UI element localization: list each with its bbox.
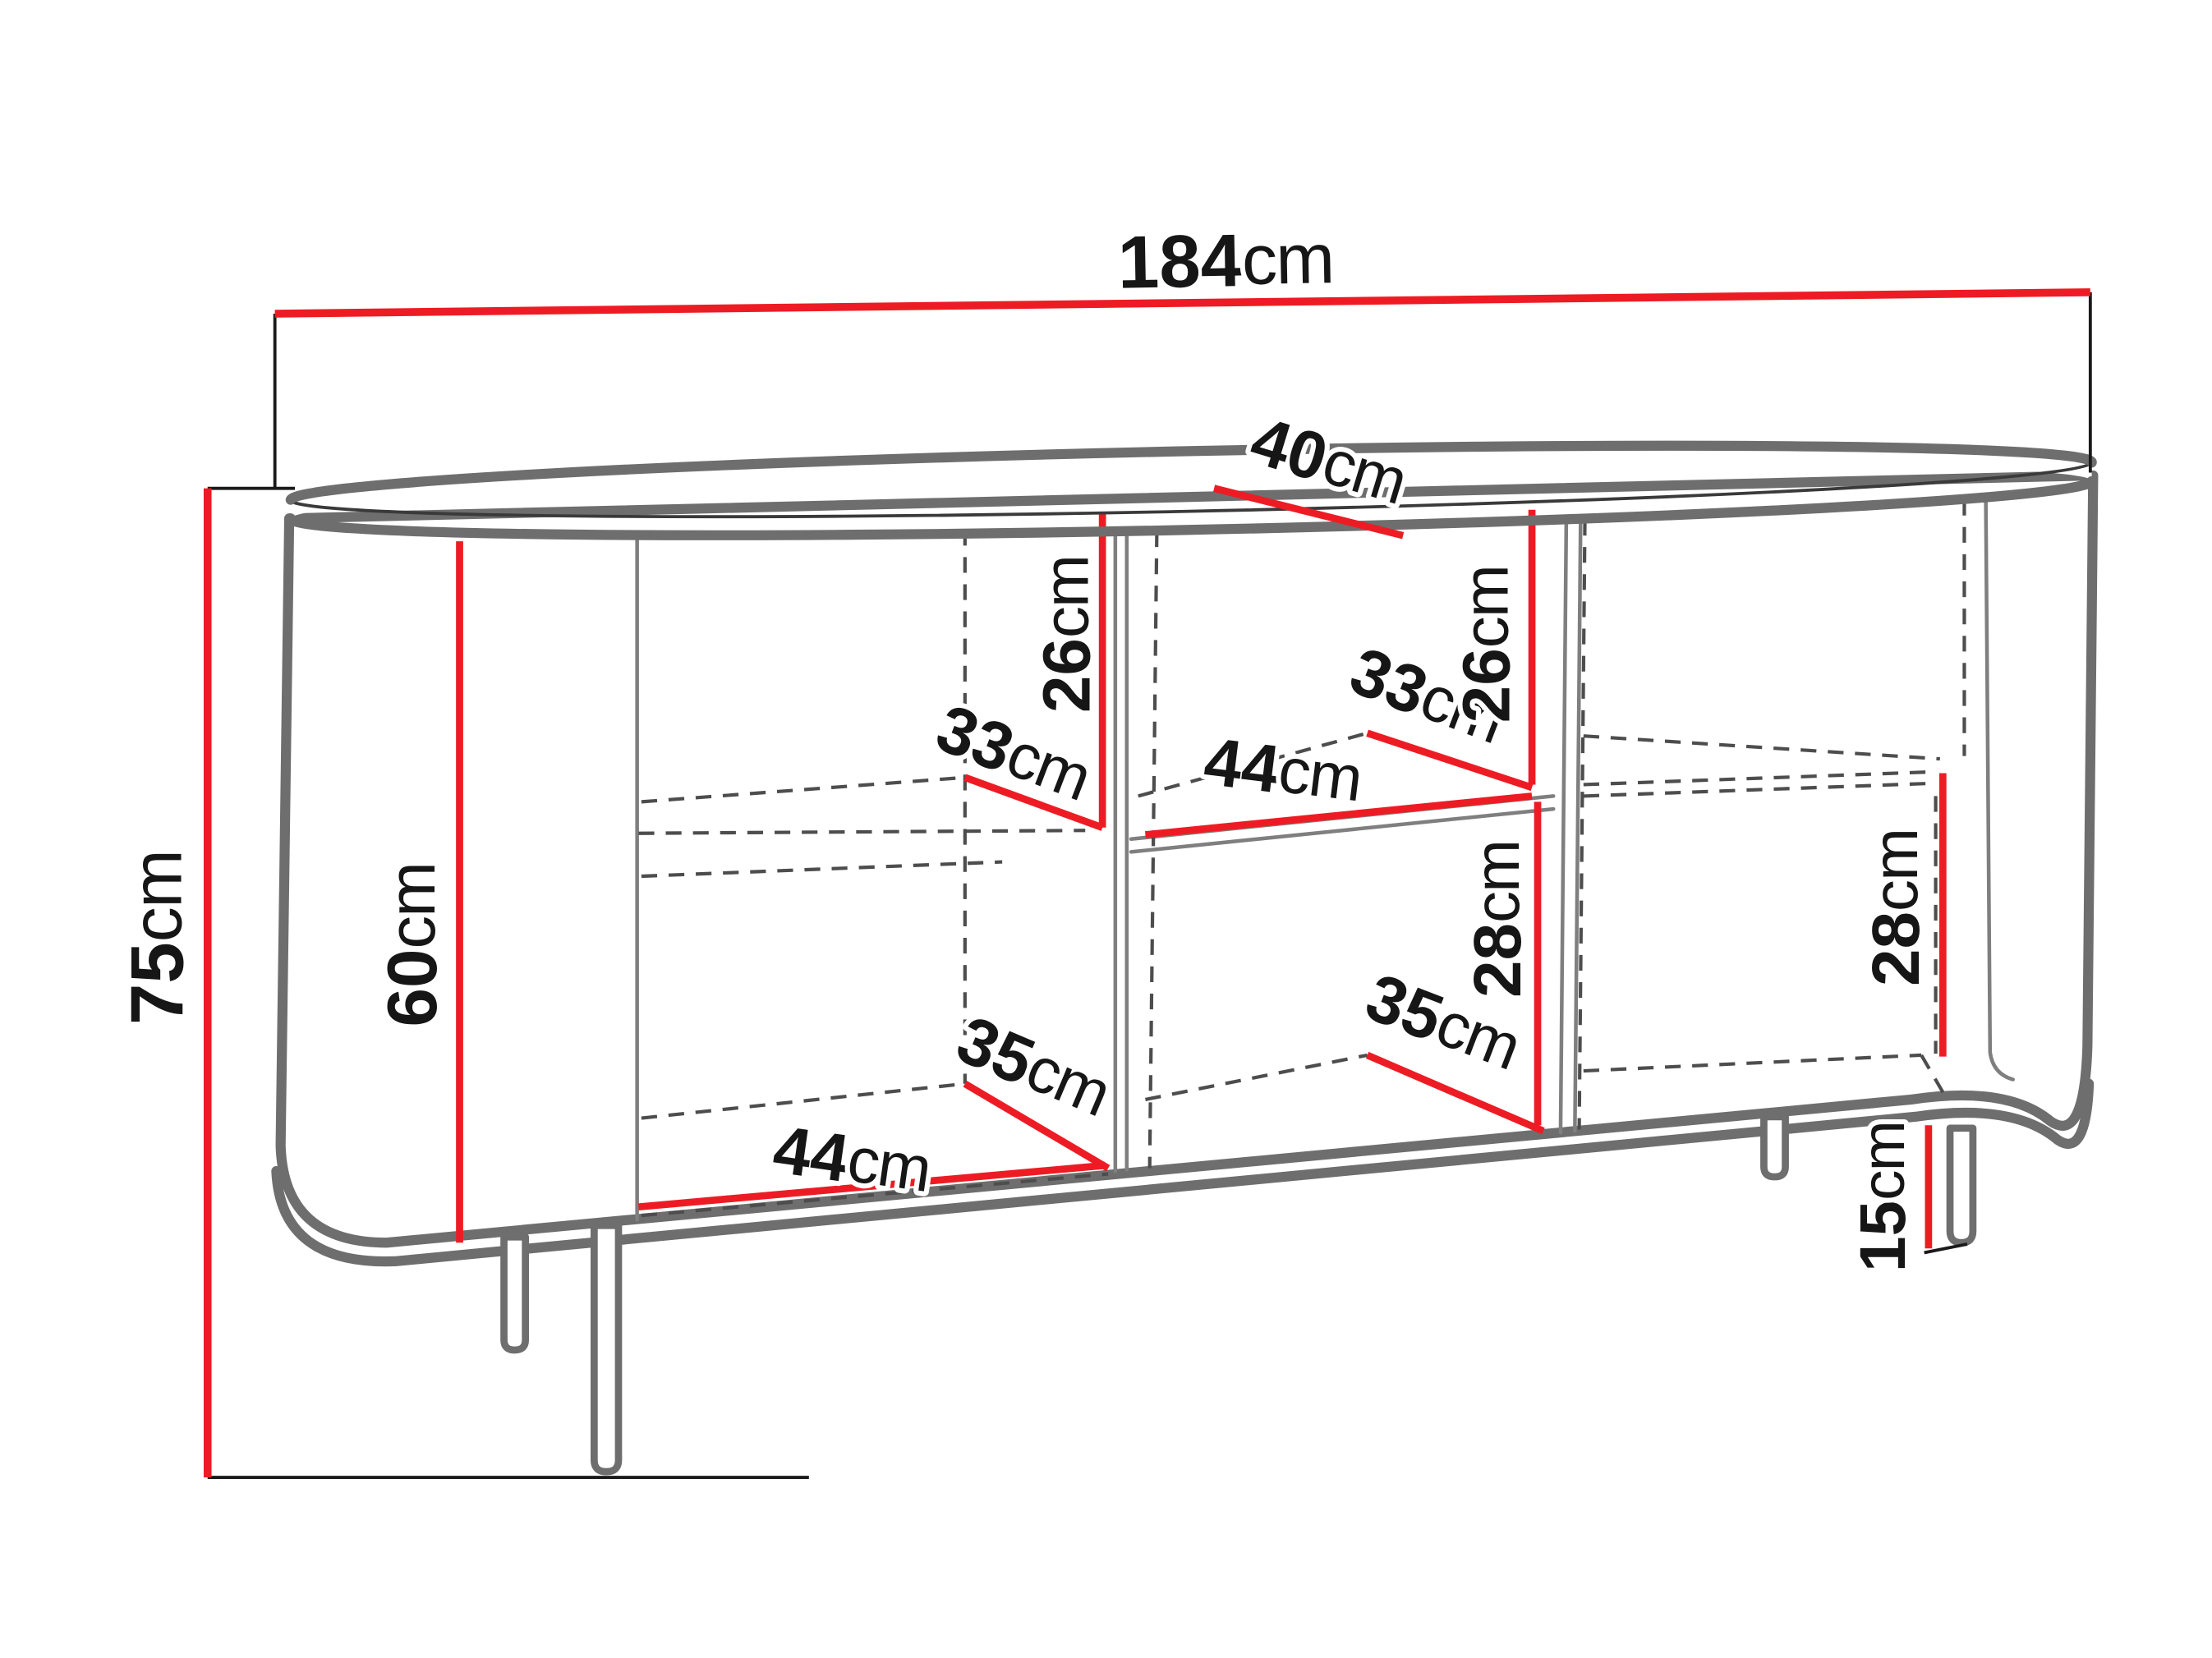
leg-back-right bbox=[1764, 1117, 1785, 1177]
cabinet-body bbox=[276, 475, 2093, 1261]
label-center-lower-height: 28cm bbox=[1460, 841, 1535, 998]
label-total-height: 75cm bbox=[116, 851, 199, 1025]
diagram-canvas: 184cm 40cm 75cm 60cm 26cm 33cm 44cm 33cm… bbox=[0, 0, 2212, 1658]
label-right-lower-height: 28cm bbox=[1858, 829, 1933, 986]
label-center-upper-height: 26cm bbox=[1449, 566, 1524, 723]
leg-back-left bbox=[504, 1237, 526, 1350]
label-left-upper-height: 26cm bbox=[1029, 556, 1104, 713]
furniture-dimension-diagram: 184cm 40cm 75cm 60cm 26cm 33cm 44cm 33cm… bbox=[0, 0, 2212, 1658]
leg-front-right bbox=[1950, 1128, 1973, 1242]
label-total-width: 184cm bbox=[1117, 218, 1334, 305]
leg-front-left bbox=[594, 1225, 619, 1472]
label-interior-height: 60cm bbox=[373, 863, 451, 1027]
label-leg-height: 15cm bbox=[1846, 1122, 1919, 1272]
